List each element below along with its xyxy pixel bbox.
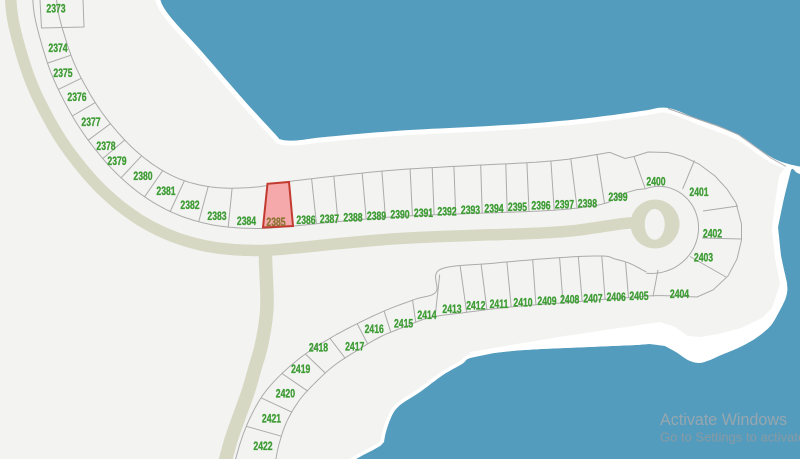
svg-text:2416: 2416: [365, 324, 384, 337]
svg-text:2422: 2422: [253, 441, 272, 454]
svg-text:2397: 2397: [555, 199, 574, 212]
svg-text:2376: 2376: [67, 92, 86, 105]
svg-text:2400: 2400: [646, 177, 665, 190]
svg-text:2411: 2411: [490, 299, 509, 312]
svg-text:2392: 2392: [437, 206, 456, 219]
svg-text:2377: 2377: [81, 117, 100, 130]
svg-text:2380: 2380: [133, 171, 152, 184]
svg-text:2386: 2386: [296, 215, 315, 228]
svg-text:2414: 2414: [417, 310, 436, 323]
svg-text:2419: 2419: [291, 364, 310, 377]
svg-text:2403: 2403: [694, 253, 713, 266]
svg-text:2388: 2388: [343, 212, 362, 225]
svg-text:2420: 2420: [276, 389, 295, 402]
svg-text:2405: 2405: [629, 291, 648, 304]
svg-text:2404: 2404: [670, 289, 689, 302]
svg-text:2421: 2421: [262, 413, 281, 426]
svg-text:2390: 2390: [390, 209, 409, 222]
svg-text:2396: 2396: [531, 201, 550, 214]
svg-text:2410: 2410: [513, 297, 532, 310]
svg-text:2402: 2402: [703, 229, 722, 242]
svg-text:2394: 2394: [484, 203, 503, 216]
svg-text:2378: 2378: [96, 141, 115, 154]
svg-text:2418: 2418: [309, 343, 328, 356]
svg-text:2384: 2384: [237, 216, 256, 229]
svg-text:2379: 2379: [107, 156, 126, 169]
svg-text:2399: 2399: [608, 192, 627, 205]
svg-text:2398: 2398: [578, 198, 597, 211]
svg-text:2385: 2385: [266, 217, 285, 230]
svg-text:2412: 2412: [466, 300, 485, 313]
svg-text:2395: 2395: [508, 202, 527, 215]
svg-text:2383: 2383: [207, 211, 226, 224]
svg-text:2391: 2391: [414, 208, 433, 221]
svg-text:2415: 2415: [394, 318, 413, 331]
svg-text:Activate Windows: Activate Windows: [660, 410, 787, 429]
svg-text:2393: 2393: [461, 205, 480, 218]
svg-text:2382: 2382: [180, 200, 199, 213]
svg-text:2417: 2417: [345, 342, 364, 355]
svg-text:2408: 2408: [560, 295, 579, 308]
svg-text:Go to Settings to activate Win: Go to Settings to activate Windows: [660, 430, 800, 445]
svg-text:2406: 2406: [607, 292, 626, 305]
svg-text:2374: 2374: [48, 43, 67, 56]
svg-text:2407: 2407: [583, 293, 602, 306]
svg-text:2409: 2409: [537, 296, 556, 309]
svg-text:2401: 2401: [689, 187, 708, 200]
svg-text:2413: 2413: [442, 304, 461, 317]
svg-text:2381: 2381: [156, 186, 175, 199]
svg-text:2387: 2387: [320, 214, 339, 227]
svg-text:2373: 2373: [46, 4, 65, 17]
svg-text:2375: 2375: [53, 68, 72, 81]
svg-text:2389: 2389: [367, 211, 386, 224]
